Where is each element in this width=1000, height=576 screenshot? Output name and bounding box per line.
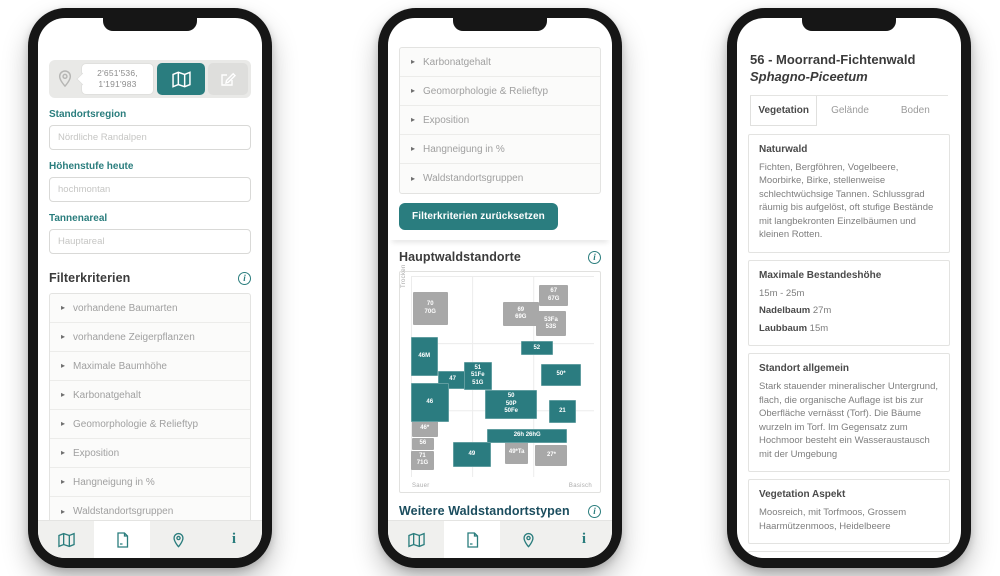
site-type-code: 70G: [425, 309, 436, 316]
site-type-code: 53S: [546, 324, 557, 331]
site-type-code: 50Fe: [504, 408, 518, 415]
y-axis-label: Trocken: [401, 264, 407, 288]
caret-right-icon: ▸: [61, 449, 65, 457]
filter-item[interactable]: ▸Waldstandortsgruppen: [400, 164, 600, 193]
text-segment: Nadelbaum: [759, 305, 810, 316]
phone-3-frame: 56 - Moorrand-Fichtenwald Sphagno-Piceet…: [727, 8, 971, 568]
text-segment: Stark stauender mineralischer Untergrund…: [759, 381, 938, 459]
site-type-box-71[interactable]: 7171G: [411, 451, 434, 470]
x-axis-left-label: Sauer: [412, 483, 430, 489]
phone-2-frame: ▸Karbonatgehalt▸Geomorphologie & Relieft…: [378, 8, 622, 568]
detail-tabs: VegetationGeländeBoden: [737, 96, 961, 126]
filter-item[interactable]: ▸vorhandene Zeigerpflanzen: [50, 323, 250, 352]
site-type-code: 52: [533, 345, 540, 352]
bottom-navigation: i: [388, 520, 612, 558]
x-axis-right-label: Basisch: [569, 483, 592, 489]
site-type-box-56[interactable]: 56: [412, 438, 434, 450]
card-text: Laubbaum 15m: [759, 322, 939, 335]
standortsregion-input[interactable]: [49, 125, 251, 150]
filter-item[interactable]: ▸Karbonatgehalt: [50, 381, 250, 410]
site-type-code: 51: [474, 365, 481, 372]
detail-card: Dominante NaturwaldbaumartFichte (Picea …: [748, 551, 950, 558]
site-type-box-21[interactable]: 21: [549, 400, 576, 423]
site-type-code: 69: [517, 307, 524, 314]
filter-item-label: Geomorphologie & Relieftyp: [73, 419, 198, 430]
location-bar: 2'651'536, 1'191'983: [49, 60, 251, 98]
nav-tab-document[interactable]: [94, 521, 150, 558]
filter-item[interactable]: ▸Maximale Baumhöhe: [50, 352, 250, 381]
filter-item[interactable]: ▸Hangneigung in %: [50, 468, 250, 497]
site-type-box-50[interactable]: 5050P50Fe: [485, 390, 537, 419]
phone-1-screen: 2'651'536, 1'191'983: [38, 18, 262, 558]
filter-item[interactable]: ▸Exposition: [50, 439, 250, 468]
filter-item-label: Maximale Baumhöhe: [73, 361, 167, 372]
text-segment: 27m: [810, 305, 831, 316]
field-label: Tannenareal: [49, 213, 251, 224]
site-type-box-50[interactable]: 50*: [541, 364, 581, 385]
site-type-code: 67G: [548, 296, 559, 303]
map-icon: [58, 532, 75, 548]
pin-icon: [170, 532, 187, 548]
filter-item-label: Geomorphologie & Relieftyp: [423, 86, 548, 97]
site-types-chart: 7070G6767G6969G53Fa53S46*567171G49*Ta27*…: [399, 271, 601, 493]
filter-item-label: Exposition: [423, 115, 469, 126]
filter-item-label: Hangneigung in %: [73, 477, 155, 488]
site-type-code: 70: [427, 301, 434, 308]
filter-item[interactable]: ▸vorhandene Baumarten: [50, 294, 250, 323]
tannenareal-input[interactable]: [49, 229, 251, 254]
detail-sections: NaturwaldFichten, Bergföhren, Vogelbeere…: [737, 126, 961, 558]
site-type-code: 26h 26hG: [514, 432, 541, 439]
tab-boden[interactable]: Boden: [883, 96, 948, 126]
map-icon: [408, 532, 425, 548]
detail-card: Standort allgemeinStark stauender minera…: [748, 353, 950, 472]
site-type-box-46M[interactable]: 46M: [411, 337, 438, 376]
site-type-box-46[interactable]: 46: [411, 383, 449, 422]
site-type-box-51[interactable]: 5151Fe51G: [464, 362, 491, 389]
filter-item[interactable]: ▸Geomorphologie & Relieftyp: [50, 410, 250, 439]
caret-right-icon: ▸: [411, 145, 415, 153]
site-type-box-46[interactable]: 46*: [412, 421, 438, 437]
site-type-code: 27*: [547, 452, 556, 459]
filter-item-label: Exposition: [73, 448, 119, 459]
detail-card: Maximale Bestandeshöhe15m - 25mNadelbaum…: [748, 260, 950, 346]
chart-title: Hauptwaldstandorte: [399, 250, 521, 264]
filter-criteria-list: ▸Karbonatgehalt▸Geomorphologie & Relieft…: [399, 47, 601, 194]
phone-2-notch: [453, 18, 547, 31]
filter-item[interactable]: ▸Karbonatgehalt: [400, 48, 600, 77]
phone-1-notch: [103, 18, 197, 31]
caret-right-icon: ▸: [411, 58, 415, 66]
caret-right-icon: ▸: [411, 175, 415, 183]
filter-item-label: Waldstandortsgruppen: [73, 506, 173, 517]
info-icon[interactable]: i: [588, 505, 601, 518]
map-icon: [172, 71, 191, 88]
site-type-box-53Fa[interactable]: 53Fa53S: [536, 311, 565, 336]
pin-icon: [520, 532, 537, 548]
site-type-box-70[interactable]: 7070G: [413, 292, 448, 325]
card-text: Fichten, Bergföhren, Vogelbeere, Moorbir…: [759, 161, 939, 242]
card-text: Moosreich, mit Torfmoos, Grossem Haarmüt…: [759, 506, 939, 533]
card-heading: Vegetation Aspekt: [759, 489, 939, 500]
site-type-code: 46: [426, 399, 433, 406]
text-segment: Moosreich, mit Torfmoos, Grossem Haarmüt…: [759, 507, 906, 531]
caret-right-icon: ▸: [61, 420, 65, 428]
site-type-code: 53Fa: [544, 317, 558, 324]
site-type-box-26h26hG[interactable]: 26h 26hG: [487, 429, 568, 443]
text-segment: 15m: [807, 323, 828, 334]
filter-item[interactable]: ▸Geomorphologie & Relieftyp: [400, 77, 600, 106]
site-type-box-49[interactable]: 49: [453, 442, 491, 467]
pin-icon: [52, 70, 78, 88]
nav-tab-info[interactable]: i: [206, 521, 262, 558]
filter-item[interactable]: ▸Exposition: [400, 106, 600, 135]
site-type-code: 49*Ta: [509, 449, 525, 456]
card-heading: Naturwald: [759, 144, 939, 155]
caret-right-icon: ▸: [411, 87, 415, 95]
nav-tab-info[interactable]: i: [556, 521, 612, 558]
site-type-code: 46*: [420, 425, 429, 432]
site-type-code: 69G: [515, 314, 526, 321]
field-tannenareal: Tannenareal: [49, 213, 251, 254]
mockup-stage: 2'651'536, 1'191'983: [0, 0, 1000, 576]
site-type-code: 50*: [557, 371, 566, 378]
site-type-code: 71G: [417, 460, 428, 467]
card-text: Nadelbaum 27m: [759, 304, 939, 317]
filter-item-label: Waldstandortsgruppen: [423, 173, 523, 184]
filter-item-label: vorhandene Baumarten: [73, 303, 178, 314]
coordinate-north: 1'191'983: [98, 79, 136, 90]
filter-item-label: vorhandene Zeigerpflanzen: [73, 332, 195, 343]
site-type-code: 51G: [472, 380, 483, 387]
phone-1-frame: 2'651'536, 1'191'983: [28, 8, 272, 568]
nav-tab-pin[interactable]: [500, 521, 556, 558]
site-type-code: 47: [449, 376, 456, 383]
info-icon: i: [232, 532, 236, 547]
text-segment: 15m - 25m: [759, 288, 804, 299]
detail-card: NaturwaldFichten, Bergföhren, Vogelbeere…: [748, 134, 950, 253]
phone-2-screen: ▸Karbonatgehalt▸Geomorphologie & Relieft…: [388, 18, 612, 558]
chart-plot-area: 7070G6767G6969G53Fa53S46*567171G49*Ta27*…: [411, 276, 594, 477]
site-type-code: 56: [420, 440, 427, 447]
nav-tab-map[interactable]: [388, 521, 444, 558]
site-type-box-69[interactable]: 6969G: [503, 302, 540, 326]
nav-tab-map[interactable]: [38, 521, 94, 558]
site-type-box-52[interactable]: 52: [521, 341, 553, 355]
site-type-box-27[interactable]: 27*: [535, 445, 567, 466]
detail-card: Vegetation AspektMoosreich, mit Torfmoos…: [748, 479, 950, 544]
edit-icon: [220, 71, 236, 87]
document-icon: [464, 532, 481, 548]
edit-coordinates-button[interactable]: [208, 63, 248, 95]
field-label: Standortsregion: [49, 109, 251, 120]
caret-right-icon: ▸: [61, 362, 65, 370]
text-segment: Fichten, Bergföhren, Vogelbeere, Moorbir…: [759, 162, 933, 240]
more-types-header: Weitere Waldstandortstypen i: [399, 504, 601, 518]
info-icon[interactable]: i: [588, 251, 601, 264]
hoehenstufe-input[interactable]: [49, 177, 251, 202]
site-type-code: 50P: [506, 401, 517, 408]
site-detail-latin-name: Sphagno-Piceetum: [750, 69, 948, 86]
site-type-code: 71: [419, 453, 426, 460]
filter-title: Filterkriterien: [49, 271, 130, 285]
more-types-title: Weitere Waldstandortstypen: [399, 504, 570, 518]
caret-right-icon: ▸: [61, 333, 65, 341]
document-icon: [114, 532, 131, 548]
card-text: Stark stauender mineralischer Untergrund…: [759, 380, 939, 461]
caret-right-icon: ▸: [61, 478, 65, 486]
caret-right-icon: ▸: [411, 116, 415, 124]
info-icon: i: [582, 532, 586, 547]
caret-right-icon: ▸: [61, 391, 65, 399]
filter-section-header: Filterkriterien i: [49, 271, 251, 285]
filter-item[interactable]: ▸Hangneigung in %: [400, 135, 600, 164]
panel-shadow-divider: [388, 230, 612, 240]
site-type-code: 51Fe: [471, 372, 485, 379]
coordinate-east: 2'651'536,: [97, 68, 138, 79]
reset-filters-button[interactable]: Filterkriterien zurücksetzen: [399, 203, 558, 230]
site-type-box-67[interactable]: 6767G: [539, 285, 568, 306]
site-type-box-49Ta[interactable]: 49*Ta: [505, 441, 528, 464]
site-type-code: 67: [550, 288, 557, 295]
field-hoehenstufe: Höhenstufe heute: [49, 161, 251, 202]
filter-item-label: Karbonatgehalt: [423, 57, 491, 68]
card-text: 15m - 25m: [759, 287, 939, 300]
filter-criteria-list: ▸vorhandene Baumarten▸vorhandene Zeigerp…: [49, 293, 251, 527]
field-label: Höhenstufe heute: [49, 161, 251, 172]
filter-item-label: Karbonatgehalt: [73, 390, 141, 401]
show-map-button[interactable]: [157, 63, 205, 95]
filter-item-label: Hangneigung in %: [423, 144, 505, 155]
site-type-code: 49: [468, 451, 475, 458]
chart-section-header: Hauptwaldstandorte i: [399, 250, 601, 264]
site-detail-title: 56 - Moorrand-Fichtenwald: [750, 52, 948, 69]
caret-right-icon: ▸: [61, 304, 65, 312]
tab-gelnde[interactable]: Gelände: [817, 96, 882, 126]
card-heading: Maximale Bestandeshöhe: [759, 270, 939, 281]
info-icon[interactable]: i: [238, 272, 251, 285]
caret-right-icon: ▸: [61, 508, 65, 516]
text-segment: Laubbaum: [759, 323, 807, 334]
nav-tab-pin[interactable]: [150, 521, 206, 558]
site-type-code: 46M: [418, 353, 430, 360]
tab-vegetation[interactable]: Vegetation: [750, 96, 817, 126]
card-heading: Standort allgemein: [759, 363, 939, 374]
site-type-code: 21: [559, 408, 566, 415]
phone-3-notch: [802, 18, 896, 31]
coordinates-display[interactable]: 2'651'536, 1'191'983: [81, 63, 154, 95]
site-type-code: 50: [508, 393, 515, 400]
phone-3-screen: 56 - Moorrand-Fichtenwald Sphagno-Piceet…: [737, 18, 961, 558]
nav-tab-document[interactable]: [444, 521, 500, 558]
bottom-navigation: i: [38, 520, 262, 558]
field-standortsregion: Standortsregion: [49, 109, 251, 150]
